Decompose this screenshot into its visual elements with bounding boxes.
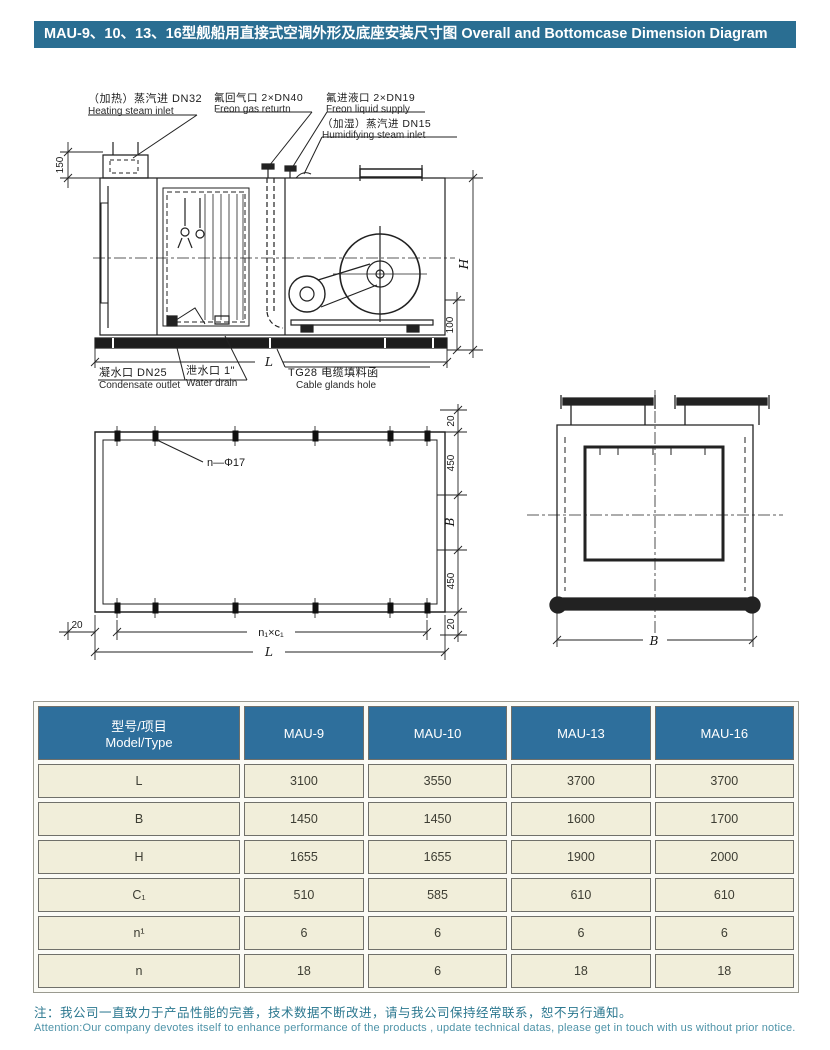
label-cable-glands: TG28 电缆填料函 Cable glands hole [288, 367, 379, 391]
spec-table: 型号/项目 Model/Type MAU-9 MAU-10 MAU-13 MAU… [34, 702, 798, 992]
row-label: L [38, 764, 240, 798]
dim-150: 150 [55, 156, 66, 173]
table-row: L 3100 3550 3700 3700 [38, 764, 794, 798]
bolt-holes [115, 426, 430, 618]
catalog-page: MAU-9、10、13、16型舰船用直接式空调外形及底座安装尺寸图 Overal… [0, 0, 830, 1050]
cell-value: 610 [511, 878, 650, 912]
row-label: n [38, 954, 240, 988]
dim-b-end: B [649, 634, 659, 648]
dim-100: 100 [445, 316, 456, 333]
dim-450-top: 450 [446, 454, 457, 471]
footer-note-zh: 注：我公司一直致力于产品性能的完善，技术数据不断改进，请与我公司保持经常联系，恕… [34, 1002, 814, 1021]
cell-value: 18 [244, 954, 364, 988]
plan-bottom-dims [59, 615, 449, 660]
cell-value: 3100 [244, 764, 364, 798]
cell-value: 1600 [511, 802, 650, 836]
table-header-row: 型号/项目 Model/Type MAU-9 MAU-10 MAU-13 MAU… [38, 706, 794, 760]
cell-value: 18 [511, 954, 650, 988]
cell-value: 510 [244, 878, 364, 912]
label-freon-liquid: 氟进液口 2×DN19 Freon liquid supply [326, 92, 415, 116]
page-title: MAU-9、10、13、16型舰船用直接式空调外形及底座安装尺寸图 Overal… [34, 21, 796, 48]
footer-note: 注：我公司一直致力于产品性能的完善，技术数据不断改进，请与我公司保持经常联系，恕… [34, 1002, 814, 1034]
table-row: B 1450 1450 1600 1700 [38, 802, 794, 836]
side-view-dimensions [60, 142, 483, 368]
cell-value: 1900 [511, 840, 650, 874]
cell-value: 1655 [368, 840, 507, 874]
cell-value: 1450 [368, 802, 507, 836]
header-mau9: MAU-9 [244, 706, 364, 760]
dim-b-plan: B [443, 517, 457, 527]
dim-20-bottom: 20 [446, 618, 457, 630]
cell-value: 18 [655, 954, 794, 988]
cell-value: 585 [368, 878, 507, 912]
cell-value: 6 [368, 954, 507, 988]
side-view-body [93, 142, 455, 348]
end-view-drawing: B [525, 385, 825, 655]
cell-value: 3700 [511, 764, 650, 798]
dim-l-side: L [264, 355, 273, 369]
header-mau13: MAU-13 [511, 706, 650, 760]
dim-h: H [457, 258, 471, 270]
footer-note-en: Attention:Our company devotes itself to … [34, 1022, 814, 1034]
label-heating-steam: （加热）蒸汽进 DN32 Heating steam inlet [88, 93, 202, 117]
cell-value: 610 [655, 878, 794, 912]
table-row: H 1655 1655 1900 2000 [38, 840, 794, 874]
table-row: n 18 6 18 18 [38, 954, 794, 988]
dim-20-left: 20 [71, 620, 83, 631]
cell-value: 2000 [655, 840, 794, 874]
cell-value: 6 [368, 916, 507, 950]
spec-table-wrapper: 型号/项目 Model/Type MAU-9 MAU-10 MAU-13 MAU… [33, 701, 799, 993]
dim-n1c1: n₁×c₁ [258, 627, 284, 639]
table-row: n¹ 6 6 6 6 [38, 916, 794, 950]
table-row: C₁ 510 585 610 610 [38, 878, 794, 912]
base-plan-drawing: n—Φ17 20 450 B 450 20 20 n₁× [55, 400, 475, 665]
label-freon-gas: 氟回气口 2×DN40 Freon gas returtn [214, 92, 303, 116]
header-model-type: 型号/项目 Model/Type [38, 706, 240, 760]
header-mau10: MAU-10 [368, 706, 507, 760]
base-frame [95, 432, 445, 612]
row-label: H [38, 840, 240, 874]
cell-value: 6 [244, 916, 364, 950]
cell-value: 3550 [368, 764, 507, 798]
cell-value: 1450 [244, 802, 364, 836]
end-view-body [527, 390, 783, 635]
dim-l-plan: L [264, 645, 273, 659]
side-view-drawing: 150 H 100 L [55, 86, 505, 398]
label-humidifying-steam: （加湿）蒸汽进 DN15 Humidifying steam inlet [322, 118, 431, 142]
row-label: n¹ [38, 916, 240, 950]
row-label: B [38, 802, 240, 836]
cell-value: 1700 [655, 802, 794, 836]
header-mau16: MAU-16 [655, 706, 794, 760]
cell-value: 6 [655, 916, 794, 950]
cell-value: 3700 [655, 764, 794, 798]
label-water-drain: 泄水口 1" Water drain [186, 365, 237, 389]
cell-value: 6 [511, 916, 650, 950]
cell-value: 1655 [244, 840, 364, 874]
label-condensate-outlet: 凝水口 DN25 Condensate outlet [99, 367, 180, 391]
dim-450-bottom: 450 [446, 572, 457, 589]
hole-callout-leader [157, 440, 203, 462]
dim-20-top: 20 [446, 415, 457, 427]
row-label: C₁ [38, 878, 240, 912]
label-hole-spec: n—Φ17 [207, 457, 245, 469]
